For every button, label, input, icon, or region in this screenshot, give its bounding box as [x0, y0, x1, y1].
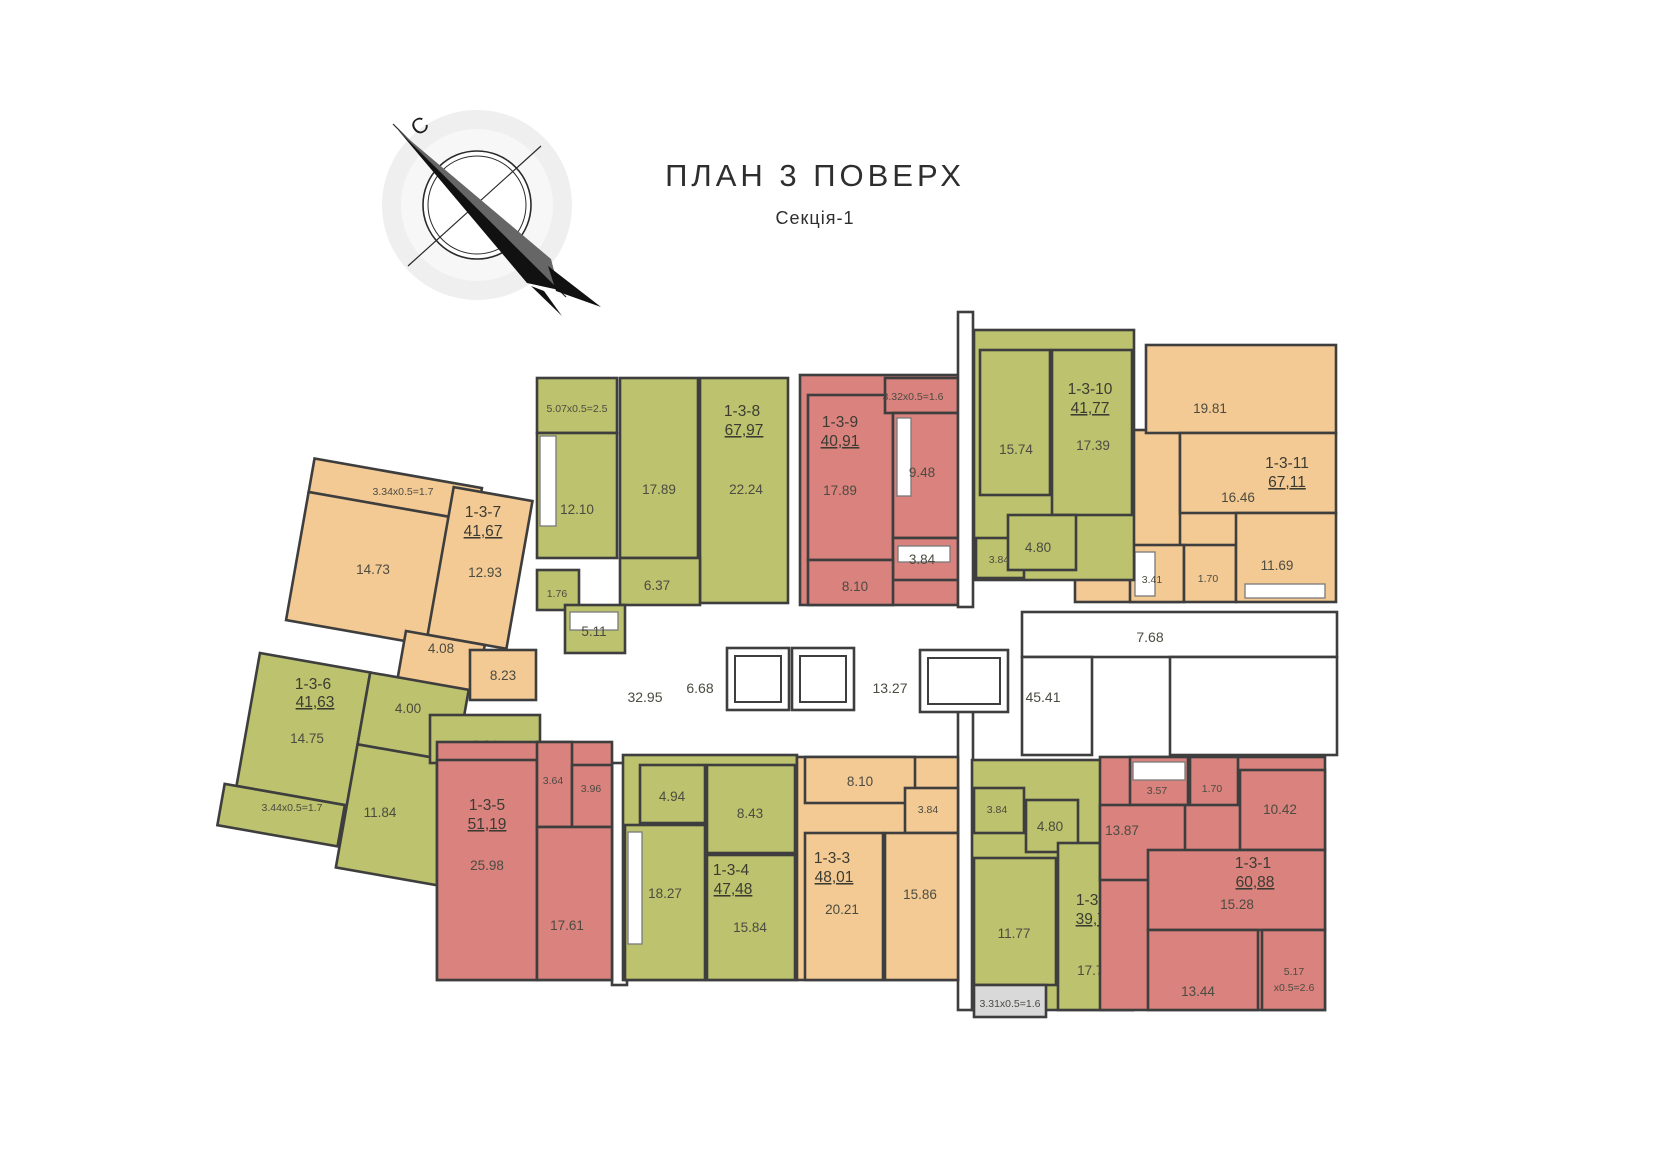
a10-area-label: 41,77: [1071, 400, 1110, 417]
a2-kitchen-11-77: [974, 858, 1056, 985]
a1-room-13-44-label: 13.44: [1181, 984, 1215, 999]
a3-id-label: 1-3-3: [814, 850, 850, 867]
a10-bath-label: 3.84: [989, 554, 1010, 566]
a10-room-17-39: [1052, 350, 1132, 515]
apartment-1-3-4: 4.94 8.43 1-3-4 47,48 18.27 15.84: [623, 755, 797, 980]
a11-room-19-81: [1146, 345, 1336, 433]
a9-bath-label: 3.84: [909, 552, 936, 567]
compass-needle-tail-1: [548, 266, 601, 307]
floor-plan-page: ПЛАН 3 ПОВЕРХ Секція-1 С: [0, 0, 1655, 1170]
a9-room-17-89-label: 17.89: [823, 483, 857, 498]
a8-room-22-24-label: 22.24: [729, 482, 763, 497]
common-room: [1170, 657, 1337, 755]
a1-room-15-28-label: 15.28: [1220, 897, 1254, 912]
corridor-45-41-label: 45.41: [1025, 689, 1060, 705]
a1-wc-1-70: [1190, 757, 1238, 805]
a9-kitchen-label: 9.48: [909, 465, 935, 480]
a8-room-17-89-label: 17.89: [642, 482, 676, 497]
a4-bath-label: 4.94: [659, 789, 686, 804]
a6-room-14-75-label: 14.75: [290, 731, 324, 746]
a9-id-label: 1-3-9: [822, 414, 858, 431]
a7-id-label: 1-3-7: [465, 504, 501, 521]
a11-kitchen-label: 11.69: [1261, 558, 1294, 573]
a3-kitchen-label: 15.86: [903, 887, 937, 902]
a11-room-16-46: [1180, 433, 1336, 513]
a7-hall-4-08-label: 4.08: [428, 641, 454, 656]
apartment-1-3-3: 8.10 3.84 1-3-3 48,01 20.21 15.86: [797, 757, 958, 980]
elevator-cab-3: [928, 658, 1000, 704]
a5-bath-label: 3.96: [581, 783, 602, 795]
a5-room-25-98-label: 25.98: [470, 858, 504, 873]
a2-bath-label: 3.84: [987, 804, 1008, 816]
a5-bath-3-96: [572, 765, 612, 827]
a2-balcony-label: 3.31x0.5=1.6: [979, 998, 1040, 1010]
apartment-1-3-9: 3.32x0.5=1.6 1-3-9 40,91 17.89 9.48 3.84…: [800, 375, 958, 605]
compass-rose: С: [382, 110, 601, 316]
a11-room-16-46-label: 16.46: [1221, 490, 1255, 505]
a6-balcony-label: 3.44x0.5=1.7: [261, 802, 322, 814]
a9-kitchen-counter: [897, 418, 911, 496]
a7-balcony-label: 3.34x0.5=1.7: [372, 486, 433, 498]
a4-room-15-84-label: 15.84: [733, 920, 767, 935]
a11-area-label: 67,11: [1268, 474, 1306, 491]
a1-kitchen-label: 10.42: [1263, 802, 1297, 817]
a7-room-14-73-label: 14.73: [356, 562, 390, 577]
a10-hall-label: 4.80: [1025, 540, 1051, 555]
a7-area-label: 41,67: [464, 523, 503, 540]
apartment-1-3-8: 5.07x0.5=2.5 1-3-8 67,97 12.10 17.89 22.…: [537, 378, 788, 653]
corridor-13-27-label: 13.27: [872, 680, 907, 696]
a8-wc-label: 1.76: [547, 588, 568, 600]
lobby-6-68-label: 6.68: [686, 680, 713, 696]
a10-room-17-39-label: 17.39: [1076, 438, 1110, 453]
a4-id-label: 1-3-4: [713, 862, 750, 879]
a1-bathtub: [1133, 762, 1185, 780]
corridor-7-68-label: 7.68: [1136, 629, 1163, 645]
a9-area-label: 40,91: [821, 433, 860, 450]
a1-area-label: 60,88: [1236, 874, 1275, 891]
a11-id-label: 1-3-11: [1265, 455, 1309, 472]
a2-kitchen-label: 11.77: [998, 926, 1031, 941]
a4-area-label: 47,48: [714, 881, 753, 898]
expansion-joint-top: [958, 312, 973, 607]
a2-hall-label: 4.80: [1037, 819, 1063, 834]
a1-entry-label: 13.87: [1105, 823, 1139, 838]
a11-kitchen-counter: [1245, 584, 1325, 598]
a5-area-label: 51,19: [468, 816, 507, 833]
a3-hall-label: 8.10: [847, 774, 873, 789]
apartment-1-3-10: 1-3-10 41,77 15.74 17.39 3.84 4.80: [974, 330, 1134, 580]
a1-bath-label: 3.57: [1147, 785, 1168, 797]
corridor-45-41-branch: [1022, 657, 1092, 755]
a1-id-label: 1-3-1: [1235, 855, 1271, 872]
a8-room-17-89: [620, 378, 698, 558]
a6-hall-4-00-label: 4.00: [395, 701, 421, 716]
corridor-7-68: [1022, 612, 1337, 657]
elevator-cab-1: [735, 656, 781, 702]
a9-balcony-label: 3.32x0.5=1.6: [882, 391, 943, 403]
a9-hall-label: 8.10: [842, 579, 868, 594]
a8-hall-label: 6.37: [644, 578, 670, 593]
a3-bath-label: 3.84: [918, 804, 939, 816]
a11-room-19-81-label: 19.81: [1193, 401, 1227, 416]
a1-balcony-label-line2: x0.5=2.6: [1274, 982, 1315, 994]
a4-kitchen-label: 18.27: [648, 886, 682, 901]
a6-room-11-84-label: 11.84: [364, 805, 397, 820]
a5-entry-label: 3.64: [543, 775, 564, 787]
elevator-cab-2: [800, 656, 846, 702]
a11-wc-label: 1.70: [1198, 573, 1219, 585]
a4-hall-label: 8.43: [737, 806, 763, 821]
a3-kitchen-15-86: [885, 833, 958, 980]
a5-room-17-61-label: 17.61: [550, 918, 584, 933]
floor-plan: С 3.34x0.5=1.7 14.73 1-3-7 41,67 12.93 4…: [0, 0, 1655, 1170]
a8-bath-label: 5.11: [581, 624, 606, 639]
a8-kitchen-counter: [540, 436, 556, 526]
a11-bath-label: 3.41: [1142, 574, 1163, 586]
a1-wc-label: 1.70: [1202, 783, 1223, 795]
a7-room-12-93-label: 12.93: [468, 565, 502, 580]
a10-kitchen-15-74: [980, 350, 1050, 495]
apartment-1-3-5: 1-3-5 51,19 25.98 3.64 3.96 17.61: [437, 742, 612, 980]
a10-kitchen-label: 15.74: [999, 442, 1033, 457]
a5-id-label: 1-3-5: [469, 797, 505, 814]
corridor-32-95-label: 32.95: [627, 689, 662, 705]
a8-balcony-label: 5.07x0.5=2.5: [546, 403, 607, 415]
a5-room-17-61: [537, 827, 612, 980]
a3-room-20-21-label: 20.21: [825, 902, 859, 917]
a3-area-label: 48,01: [815, 869, 854, 886]
a10-id-label: 1-3-10: [1068, 381, 1113, 398]
a7-bath-8-23-label: 8.23: [490, 668, 516, 683]
apartment-1-3-1: 3.57 1.70 13.87 10.42 1-3-1 60,88 15.28 …: [1100, 757, 1325, 1010]
a8-area-label: 67,97: [725, 422, 764, 439]
a6-id-label: 1-3-6: [295, 676, 331, 693]
a8-id-label: 1-3-8: [724, 403, 760, 420]
a1-balcony-label-line1: 5.17: [1284, 966, 1305, 978]
a6-area-label: 41,63: [296, 694, 335, 711]
a8-kitchen-label: 12.10: [560, 502, 594, 517]
a4-kitchen-counter: [628, 832, 642, 944]
